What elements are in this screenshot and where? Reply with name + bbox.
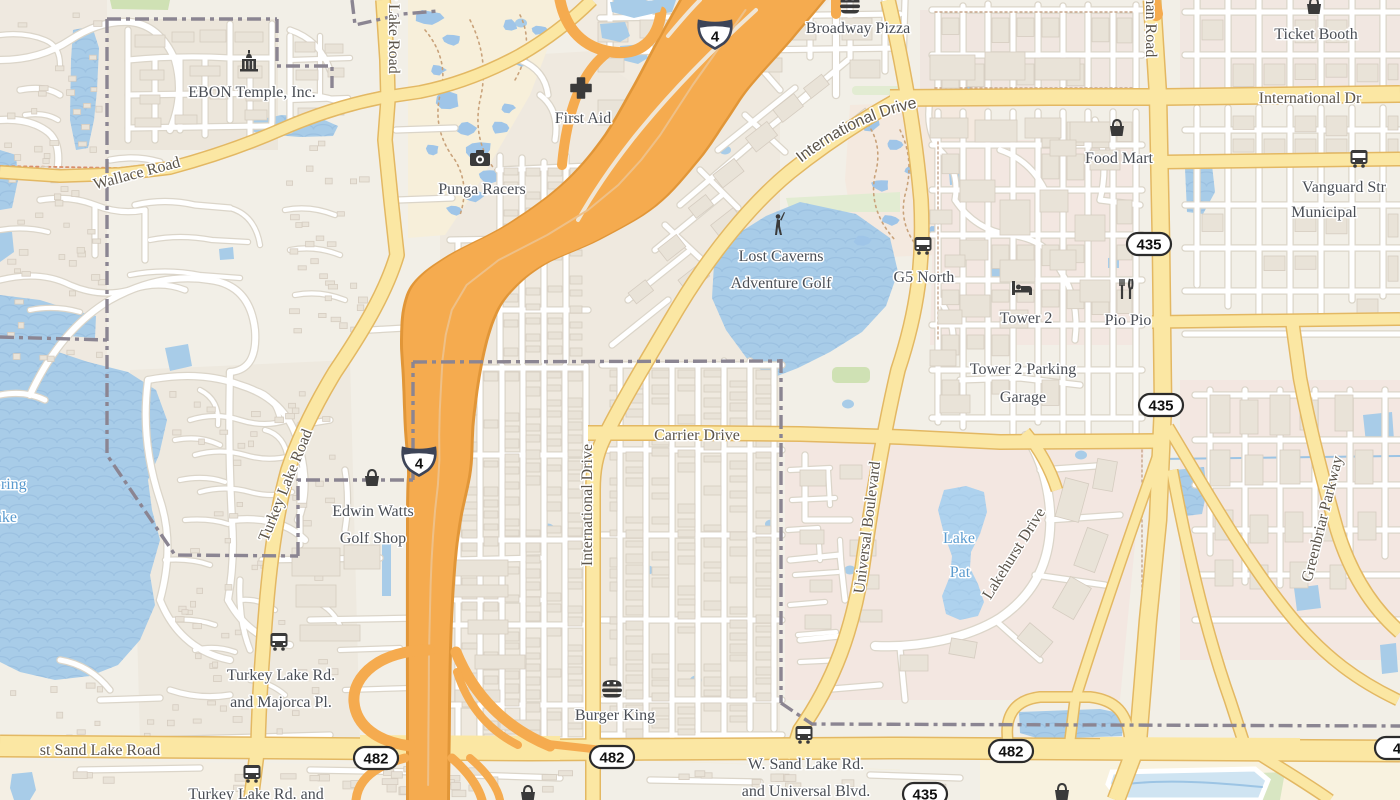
svg-text:482: 482 bbox=[599, 750, 624, 767]
svg-text:Garage: Garage bbox=[1000, 389, 1046, 406]
svg-text:482: 482 bbox=[998, 744, 1023, 761]
svg-text:G5 North: G5 North bbox=[894, 269, 955, 286]
svg-text:Kirkman Road: Kirkman Road bbox=[1142, 0, 1159, 57]
svg-text:435: 435 bbox=[912, 787, 937, 800]
svg-text:Adventure Golf: Adventure Golf bbox=[731, 275, 833, 292]
svg-text:EBON Temple, Inc.: EBON Temple, Inc. bbox=[188, 84, 315, 101]
svg-text:Lake: Lake bbox=[0, 509, 17, 526]
svg-text:Turkey Lake Rd.: Turkey Lake Rd. bbox=[227, 667, 335, 684]
svg-text:st Sand Lake Road: st Sand Lake Road bbox=[40, 742, 160, 759]
svg-text:4: 4 bbox=[711, 29, 720, 46]
svg-text:Golf Shop: Golf Shop bbox=[340, 530, 406, 547]
svg-text:Tower 2 Parking: Tower 2 Parking bbox=[970, 361, 1076, 378]
svg-text:and Majorca Pl.: and Majorca Pl. bbox=[230, 694, 332, 711]
svg-text:Carrier Drive: Carrier Drive bbox=[654, 427, 740, 444]
svg-text:4: 4 bbox=[1393, 741, 1400, 758]
svg-text:and Universal Blvd.: and Universal Blvd. bbox=[742, 783, 870, 800]
svg-text:Turkey Lake Road: Turkey Lake Road bbox=[385, 0, 402, 74]
svg-text:435: 435 bbox=[1136, 237, 1161, 254]
svg-text:Pat: Pat bbox=[950, 564, 971, 581]
svg-text:Lake: Lake bbox=[943, 530, 975, 547]
svg-text:Broadway Pizza: Broadway Pizza bbox=[806, 20, 910, 37]
svg-text:First Aid: First Aid bbox=[555, 110, 611, 127]
svg-text:Spring: Spring bbox=[0, 476, 27, 493]
svg-text:International Dr: International Dr bbox=[1259, 90, 1362, 107]
svg-text:Ticket Booth: Ticket Booth bbox=[1274, 26, 1357, 43]
svg-text:Municipal: Municipal bbox=[1291, 204, 1357, 221]
svg-text:Pio Pio: Pio Pio bbox=[1105, 312, 1152, 329]
svg-text:Tower 2: Tower 2 bbox=[1000, 310, 1053, 327]
svg-text:Lost Caverns: Lost Caverns bbox=[739, 248, 824, 265]
svg-text:4: 4 bbox=[415, 456, 424, 473]
svg-text:International Drive: International Drive bbox=[579, 444, 596, 566]
svg-text:Edwin Watts: Edwin Watts bbox=[332, 503, 414, 520]
svg-text:Burger King: Burger King bbox=[575, 707, 655, 724]
svg-text:Vanguard Str: Vanguard Str bbox=[1302, 179, 1387, 196]
svg-text:Food Mart: Food Mart bbox=[1085, 150, 1154, 167]
svg-text:W. Sand Lake Rd.: W. Sand Lake Rd. bbox=[748, 756, 864, 773]
svg-text:Punga Racers: Punga Racers bbox=[438, 181, 526, 198]
svg-text:Turkey Lake Rd. and: Turkey Lake Rd. and bbox=[188, 786, 323, 800]
svg-text:482: 482 bbox=[363, 751, 388, 768]
svg-text:435: 435 bbox=[1148, 398, 1173, 415]
